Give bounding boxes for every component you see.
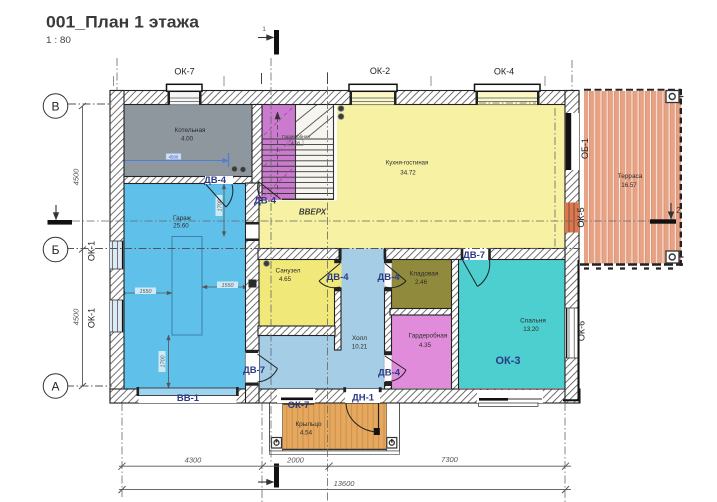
svg-text:13600: 13600 — [334, 479, 356, 488]
svg-text:4500: 4500 — [72, 168, 81, 186]
svg-text:13.20: 13.20 — [523, 326, 539, 333]
svg-text:1550: 1550 — [222, 283, 234, 289]
svg-text:Кладовая: Кладовая — [410, 271, 439, 278]
svg-text:ДВ-4: ДВ-4 — [204, 175, 227, 186]
svg-text:4.08: 4.08 — [291, 141, 300, 146]
svg-text:Холл: Холл — [352, 335, 367, 342]
svg-text:ОК-7: ОК-7 — [174, 67, 194, 77]
svg-text:ОК-2: ОК-2 — [370, 66, 390, 76]
svg-text:ОК-4: ОК-4 — [494, 67, 514, 77]
svg-text:ДН-1: ДН-1 — [352, 393, 375, 404]
svg-text:2000: 2000 — [286, 455, 305, 464]
svg-text:Крыльцо: Крыльцо — [295, 421, 322, 428]
svg-text:4500: 4500 — [169, 154, 179, 159]
svg-text:ДВ-4: ДВ-4 — [377, 272, 400, 283]
svg-text:Гардеробная: Гардеробная — [282, 134, 310, 139]
svg-text:2.46: 2.46 — [415, 279, 428, 286]
svg-text:ДВ-4: ДВ-4 — [254, 196, 277, 207]
svg-text:4500: 4500 — [72, 308, 81, 326]
svg-text:4300: 4300 — [185, 455, 203, 464]
svg-text:В: В — [51, 99, 59, 113]
svg-text:ДВ-4: ДВ-4 — [378, 368, 401, 379]
svg-text:1 : 80: 1 : 80 — [46, 35, 71, 45]
svg-text:ОК-1: ОК-1 — [87, 308, 97, 328]
svg-text:1550: 1550 — [140, 289, 152, 295]
svg-text:1700: 1700 — [161, 356, 167, 368]
svg-text:7300: 7300 — [441, 455, 459, 464]
svg-text:ДВ-4: ДВ-4 — [326, 272, 349, 283]
svg-text:Котельная: Котельная — [175, 127, 206, 134]
svg-text:ОК-6: ОК-6 — [577, 321, 587, 341]
svg-text:Гардеробная: Гардеробная — [409, 332, 448, 340]
svg-text:А: А — [51, 379, 59, 393]
svg-text:ОК-7: ОК-7 — [288, 400, 310, 411]
svg-text:ВВ-1: ВВ-1 — [177, 393, 200, 404]
svg-text:2: 2 — [676, 206, 681, 215]
svg-text:ВВЕРХ: ВВЕРХ — [299, 208, 327, 217]
svg-text:4.00: 4.00 — [181, 136, 194, 143]
svg-text:001_План 1 этажа: 001_План 1 этажа — [46, 14, 200, 32]
svg-text:4.35: 4.35 — [419, 342, 432, 349]
svg-text:ОК-3: ОК-3 — [495, 355, 520, 367]
svg-text:ОБ-1: ОБ-1 — [580, 138, 590, 159]
svg-text:10.21: 10.21 — [352, 344, 368, 351]
svg-text:ДВ-7: ДВ-7 — [463, 250, 485, 261]
svg-text:Кухня-гостиная: Кухня-гостиная — [386, 161, 428, 167]
svg-text:ДВ-7: ДВ-7 — [243, 365, 265, 376]
svg-text:Спальня: Спальня — [520, 318, 546, 325]
svg-text:25.60: 25.60 — [173, 223, 189, 230]
svg-text:Санузел: Санузел — [276, 268, 301, 275]
svg-text:34.72: 34.72 — [400, 170, 416, 177]
svg-text:4.65: 4.65 — [279, 276, 292, 283]
svg-text:16.57: 16.57 — [621, 182, 637, 189]
svg-text:ОК-1: ОК-1 — [87, 241, 97, 261]
svg-text:ОК-5: ОК-5 — [576, 207, 586, 227]
svg-text:Б: Б — [52, 243, 60, 257]
svg-text:1: 1 — [262, 26, 266, 33]
svg-text:Терраса: Терраса — [618, 173, 643, 180]
svg-text:Гараж: Гараж — [173, 215, 192, 222]
svg-text:4.54: 4.54 — [300, 430, 313, 437]
